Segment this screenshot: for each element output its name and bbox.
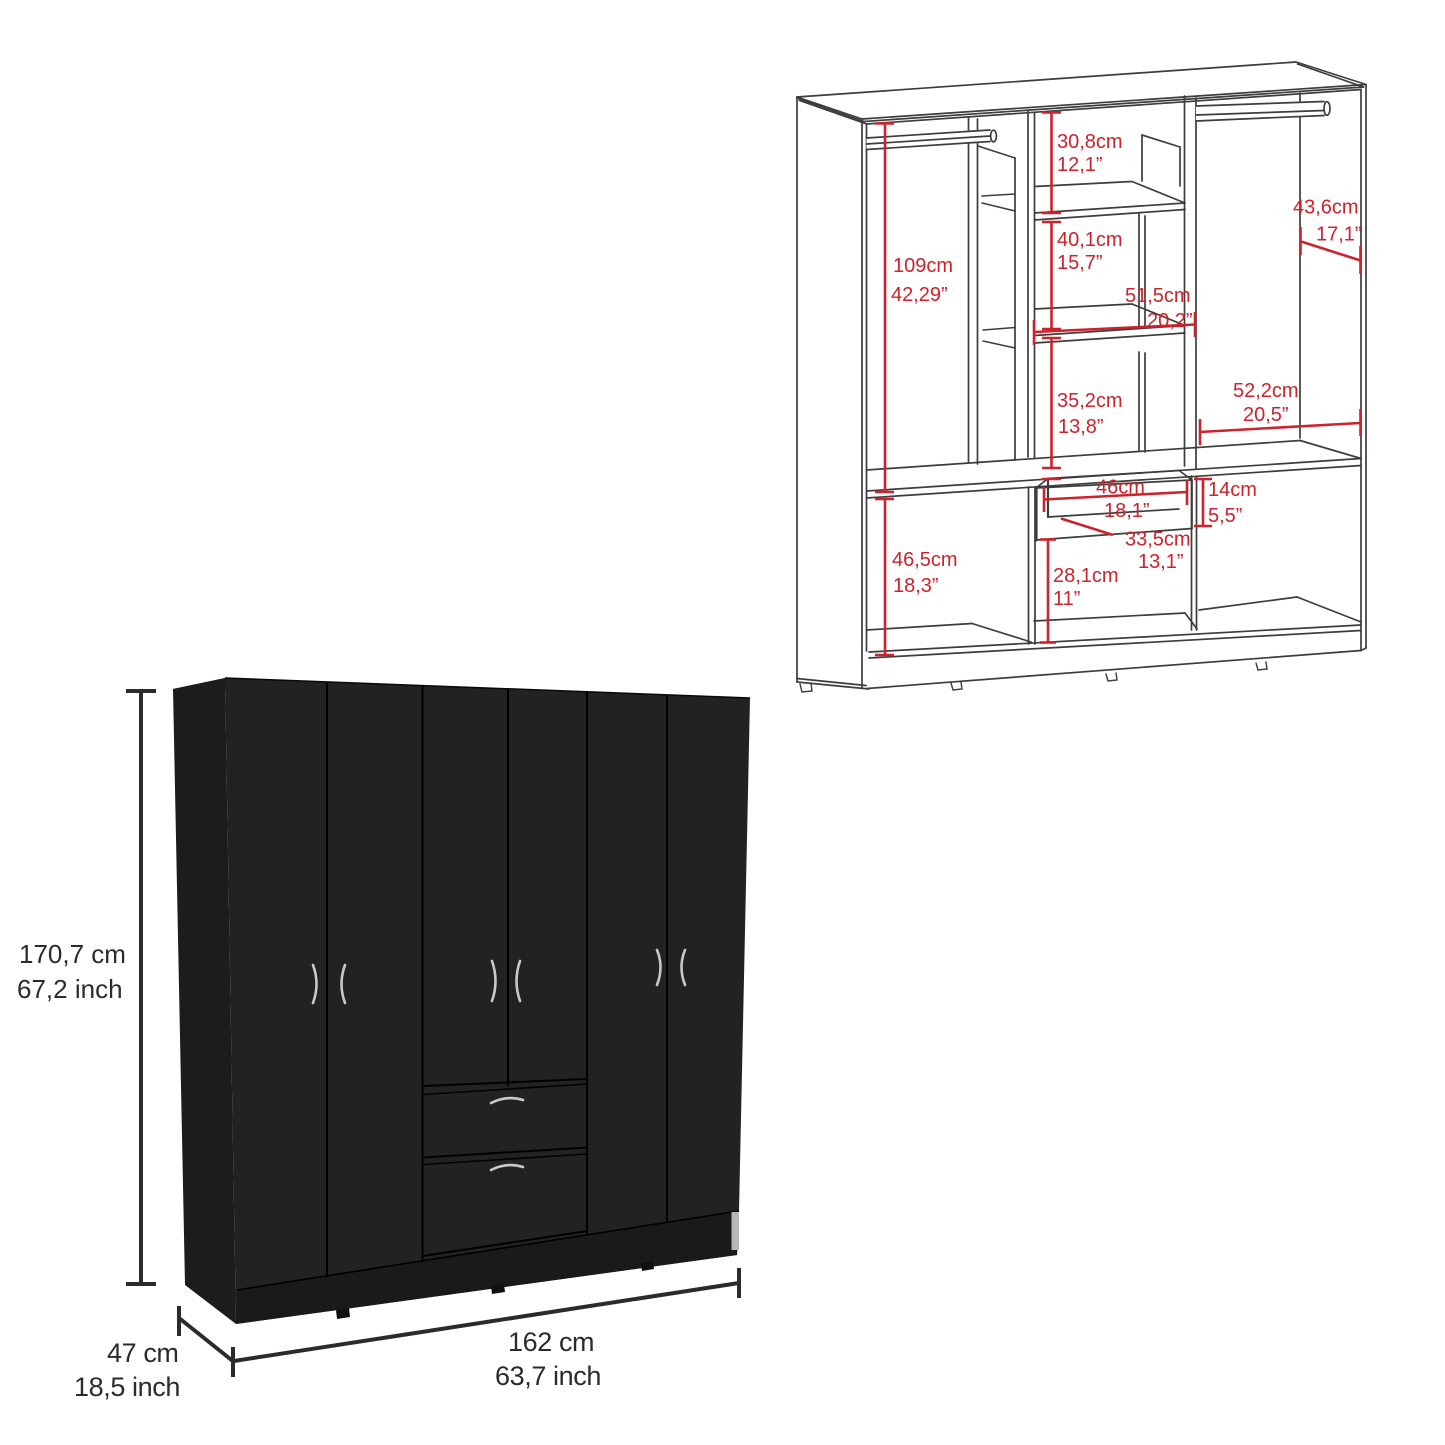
svg-text:12,1”: 12,1”	[1057, 154, 1103, 176]
svg-text:14cm: 14cm	[1208, 479, 1257, 501]
svg-text:162 cm: 162 cm	[508, 1327, 594, 1357]
svg-text:30,8cm: 30,8cm	[1057, 131, 1123, 153]
svg-text:52,2cm: 52,2cm	[1233, 380, 1299, 402]
svg-text:51,5cm: 51,5cm	[1125, 285, 1191, 307]
svg-text:18,3”: 18,3”	[893, 575, 939, 597]
svg-text:5,5”: 5,5”	[1208, 505, 1242, 527]
svg-text:42,29”: 42,29”	[891, 284, 948, 306]
svg-text:20,5”: 20,5”	[1243, 404, 1289, 426]
svg-text:13,1”: 13,1”	[1138, 551, 1184, 573]
svg-text:67,2 inch: 67,2 inch	[17, 974, 123, 1004]
svg-text:33,5cm: 33,5cm	[1125, 529, 1191, 551]
svg-text:35,2cm: 35,2cm	[1057, 390, 1123, 412]
svg-text:46cm: 46cm	[1096, 477, 1145, 499]
svg-text:28,1cm: 28,1cm	[1053, 565, 1119, 587]
svg-text:170,7 cm: 170,7 cm	[19, 939, 126, 969]
svg-text:47 cm: 47 cm	[107, 1338, 179, 1368]
svg-text:20,2”: 20,2”	[1147, 310, 1193, 332]
svg-text:63,7 inch: 63,7 inch	[495, 1361, 601, 1391]
svg-text:11”: 11”	[1053, 588, 1080, 610]
svg-text:13,8”: 13,8”	[1058, 416, 1104, 438]
svg-text:18,1”: 18,1”	[1104, 500, 1150, 522]
svg-text:46,5cm: 46,5cm	[892, 549, 958, 571]
svg-text:40,1cm: 40,1cm	[1057, 229, 1123, 251]
svg-text:17,1”: 17,1”	[1316, 224, 1362, 246]
svg-text:43,6cm: 43,6cm	[1293, 197, 1359, 219]
svg-text:15,7”: 15,7”	[1057, 252, 1103, 274]
svg-text:109cm: 109cm	[893, 255, 953, 277]
svg-text:18,5 inch: 18,5 inch	[74, 1372, 180, 1402]
